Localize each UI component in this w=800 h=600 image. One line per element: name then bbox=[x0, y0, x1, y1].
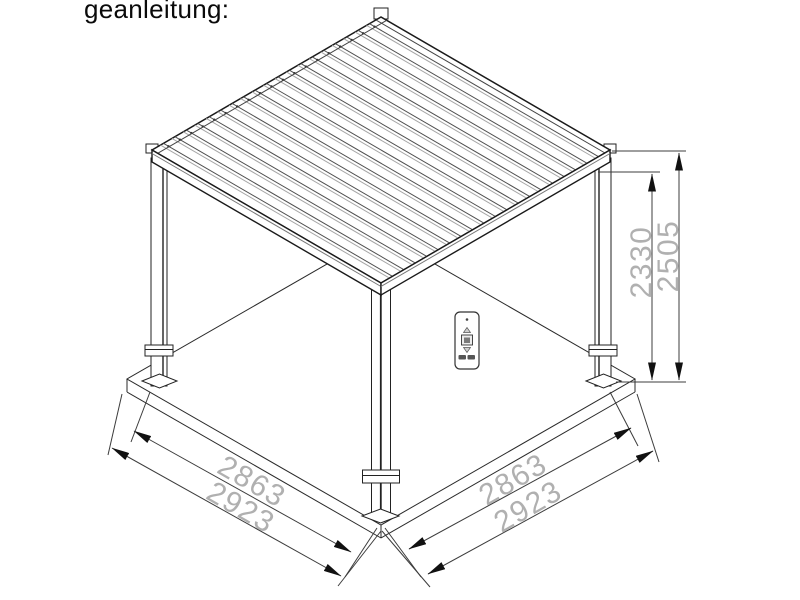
ext-line-front-right-2 bbox=[382, 531, 430, 587]
louvered-roof bbox=[146, 8, 616, 295]
remote-display-screen bbox=[464, 338, 470, 344]
ext-line-left-slab bbox=[108, 394, 122, 455]
remote-button-left bbox=[459, 355, 467, 360]
remote-button-right bbox=[468, 355, 476, 360]
ext-line-front-left-1 bbox=[345, 528, 377, 577]
ext-line-front-left-2 bbox=[338, 531, 381, 586]
pergola-drawing-page: geanleitung: bbox=[0, 0, 800, 600]
post-left bbox=[142, 158, 177, 388]
pergola-technical-drawing: 2330 2505 2863 2923 2863 2923 bbox=[0, 0, 800, 600]
post-right bbox=[586, 158, 621, 388]
dim-label-height-overall: 2505 bbox=[652, 220, 685, 293]
ext-line-right-slab bbox=[637, 394, 659, 462]
remote-control bbox=[455, 312, 479, 369]
remote-led bbox=[466, 318, 469, 321]
ext-line-right-post bbox=[610, 392, 638, 446]
